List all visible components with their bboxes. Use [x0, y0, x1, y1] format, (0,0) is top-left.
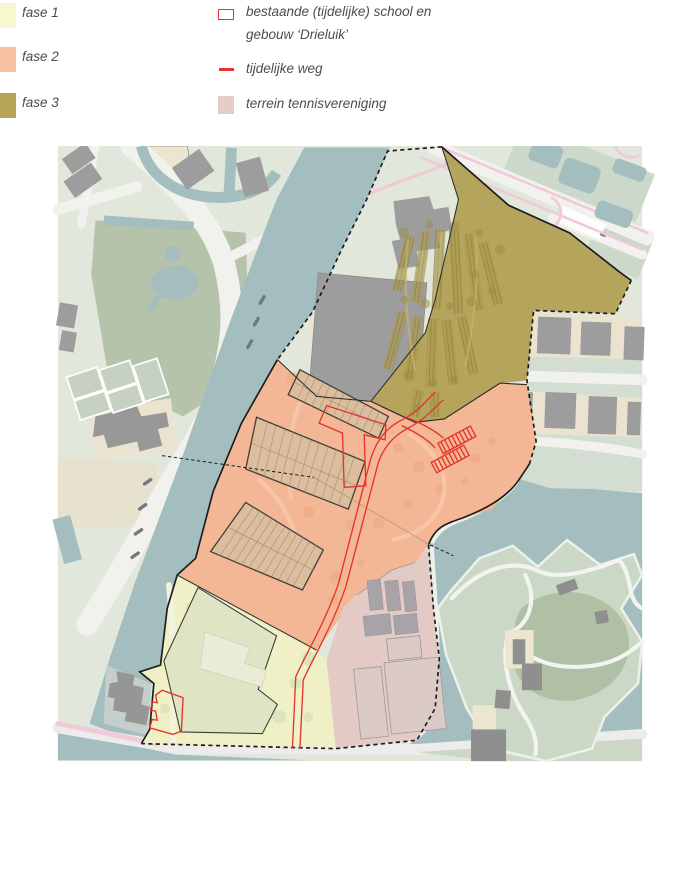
- legend-symbol-tennis-swatch: [218, 96, 234, 114]
- legend-swatch-fase-1: [0, 3, 16, 28]
- legend-label-tennis: terrein tennisvereniging: [246, 96, 386, 111]
- legend-label-fase-3: fase 3: [22, 95, 59, 110]
- site-plan-map: [0, 146, 700, 883]
- legend-label-school-line1: bestaande (tijdelijke) school en: [246, 4, 431, 19]
- legend: fase 1 fase 2 fase 3 bestaande (tijdelij…: [0, 0, 700, 146]
- legend-label-temporary-road: tijdelijke weg: [246, 61, 323, 76]
- legend-label-fase-1: fase 1: [22, 5, 59, 20]
- legend-label-fase-2: fase 2: [22, 49, 59, 64]
- legend-symbol-temporary-road-icon: [219, 68, 234, 71]
- legend-symbol-school-outline-icon: [218, 9, 234, 20]
- legend-label-school-line2: gebouw ‘Drieluik’: [246, 27, 348, 42]
- page: { "legend": { "items": [ { "label": "fas…: [0, 0, 700, 883]
- legend-swatch-fase-3: [0, 93, 16, 118]
- legend-swatch-fase-2: [0, 47, 16, 72]
- site-plan-svg: [0, 146, 700, 883]
